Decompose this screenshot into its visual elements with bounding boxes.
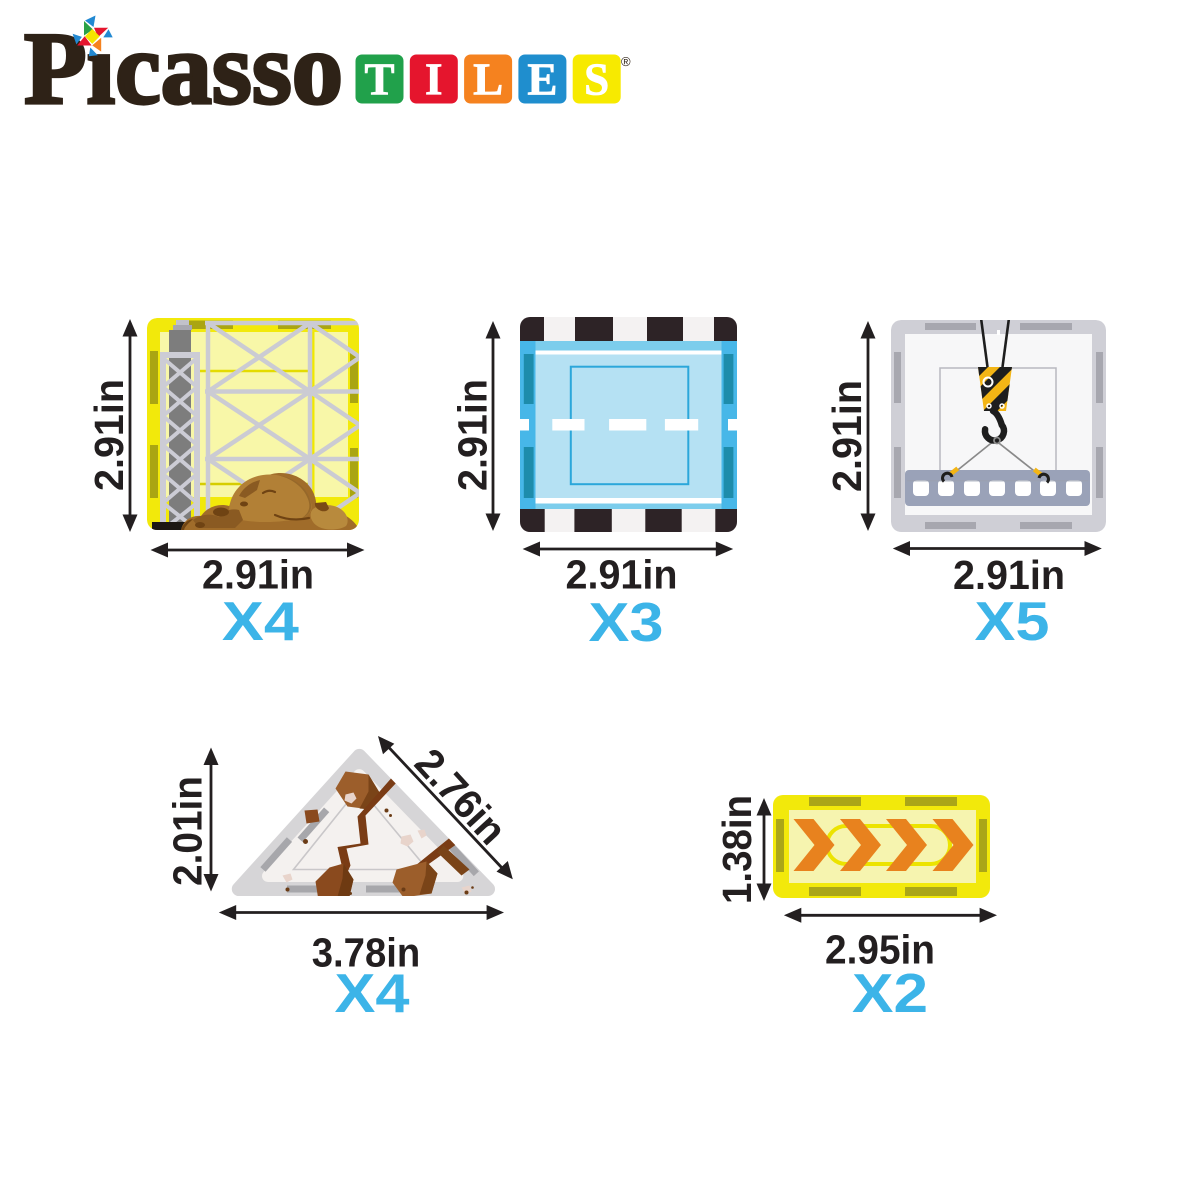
svg-text:2.91in: 2.91in bbox=[86, 379, 132, 491]
svg-text:1.38in: 1.38in bbox=[714, 795, 760, 904]
svg-text:T: T bbox=[364, 55, 394, 105]
svg-text:2.01in: 2.01in bbox=[165, 776, 211, 886]
svg-text:S: S bbox=[584, 55, 609, 105]
svg-text:Pıcasso: Pıcasso bbox=[24, 12, 343, 126]
svg-text:2.91in: 2.91in bbox=[450, 379, 496, 491]
svg-text:X2: X2 bbox=[852, 962, 928, 1024]
svg-text:X4: X4 bbox=[335, 962, 410, 1024]
svg-text:I: I bbox=[425, 55, 443, 105]
svg-text:L: L bbox=[473, 55, 503, 105]
svg-text:X5: X5 bbox=[975, 590, 1050, 652]
svg-text:2.91in: 2.91in bbox=[824, 380, 870, 492]
svg-text:X3: X3 bbox=[589, 591, 664, 653]
svg-text:®: ® bbox=[621, 54, 631, 69]
svg-text:X4: X4 bbox=[222, 590, 299, 652]
svg-text:E: E bbox=[527, 55, 557, 105]
